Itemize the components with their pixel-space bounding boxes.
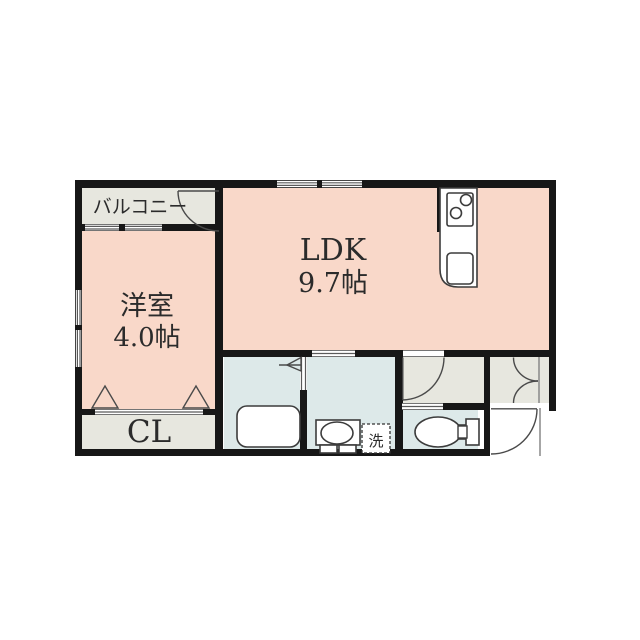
washing-machine-space: 洗 [362, 424, 390, 453]
laundry-label: 洗 [368, 432, 383, 450]
entrance-door [491, 409, 537, 454]
western-room-area-label: 4.0帖 [113, 323, 180, 353]
toilet [415, 417, 479, 447]
ldk-area-label: 9.7帖 [298, 268, 368, 299]
floorplan-canvas: 洗 バルコニー LDK 9.7帖 洋室 4.0帖 CL [0, 0, 640, 640]
ldk-label: LDK [300, 233, 367, 268]
ldk-top-window [277, 180, 362, 188]
bathtub [237, 406, 300, 447]
balcony-window [85, 224, 162, 231]
floorplan-svg: 洗 バルコニー LDK 9.7帖 洋室 4.0帖 CL [0, 0, 640, 640]
kitchen-counter [440, 188, 477, 287]
balcony-label: バルコニー [93, 196, 188, 218]
western-room-label: 洋室 [120, 291, 174, 322]
ldk-floor [223, 188, 549, 350]
closet-label: CL [127, 414, 171, 450]
hallway-door-opening [403, 351, 444, 357]
shoe-closet-floor [490, 357, 549, 403]
toilet-door-opening [402, 404, 443, 410]
washroom-entry-opening [312, 351, 355, 357]
bathroom-door-slot [302, 357, 306, 390]
western-room-left-window [75, 290, 82, 367]
